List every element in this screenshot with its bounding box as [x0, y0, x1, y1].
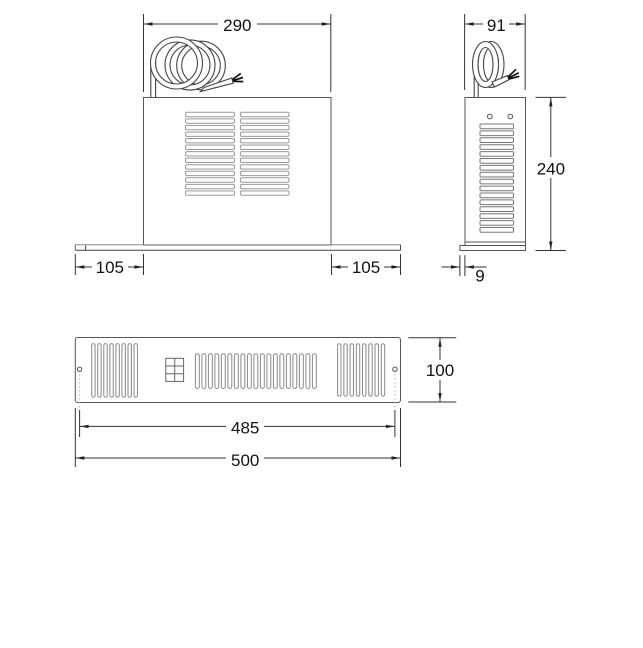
svg-text:105: 105	[96, 258, 124, 277]
svg-text:105: 105	[352, 258, 380, 277]
svg-text:500: 500	[231, 451, 259, 470]
svg-text:100: 100	[426, 361, 454, 380]
svg-text:9: 9	[475, 267, 484, 286]
svg-text:240: 240	[537, 159, 565, 178]
svg-text:91: 91	[487, 16, 506, 35]
svg-text:485: 485	[231, 419, 259, 438]
svg-text:290: 290	[223, 16, 251, 35]
